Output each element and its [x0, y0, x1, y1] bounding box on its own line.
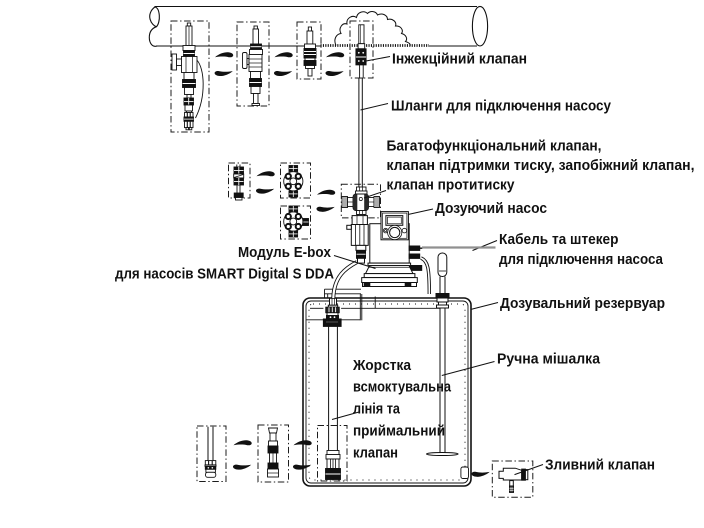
svg-text:лінія та: лінія та: [353, 402, 401, 418]
svg-text:клапан: клапан: [353, 446, 398, 462]
svg-text:приймальний: приймальний: [353, 424, 445, 440]
svg-text:для насосів SMART Digital S DD: для насосів SMART Digital S DDA: [115, 267, 334, 283]
svg-text:Ручна мішалка: Ручна мішалка: [497, 352, 601, 368]
svg-text:Шланги для підключення насосу: Шланги для підключення насосу: [391, 99, 611, 115]
svg-text:Жорстка: Жорстка: [352, 358, 412, 374]
svg-text:Кабель та штекер: Кабель та штекер: [499, 232, 619, 248]
svg-text:Багатофункціональний клапан,: Багатофункціональний клапан,: [387, 139, 602, 155]
svg-text:Дозувальний резервуар: Дозувальний резервуар: [500, 296, 665, 312]
svg-text:Модуль E-box: Модуль E-box: [238, 245, 331, 261]
svg-text:Інжекційний клапан: Інжекційний клапан: [392, 52, 527, 68]
svg-text:для підключення насоса: для підключення насоса: [499, 252, 664, 268]
svg-text:клапан підтримки тиску, запобі: клапан підтримки тиску, запобіжний клапа…: [387, 158, 695, 174]
svg-text:клапан протитиску: клапан протитиску: [387, 178, 515, 194]
svg-text:Дозуючий насос: Дозуючий насос: [435, 201, 547, 217]
svg-text:Зливний клапан: Зливний клапан: [545, 458, 655, 474]
svg-text:всмоктувальна: всмоктувальна: [353, 380, 452, 396]
